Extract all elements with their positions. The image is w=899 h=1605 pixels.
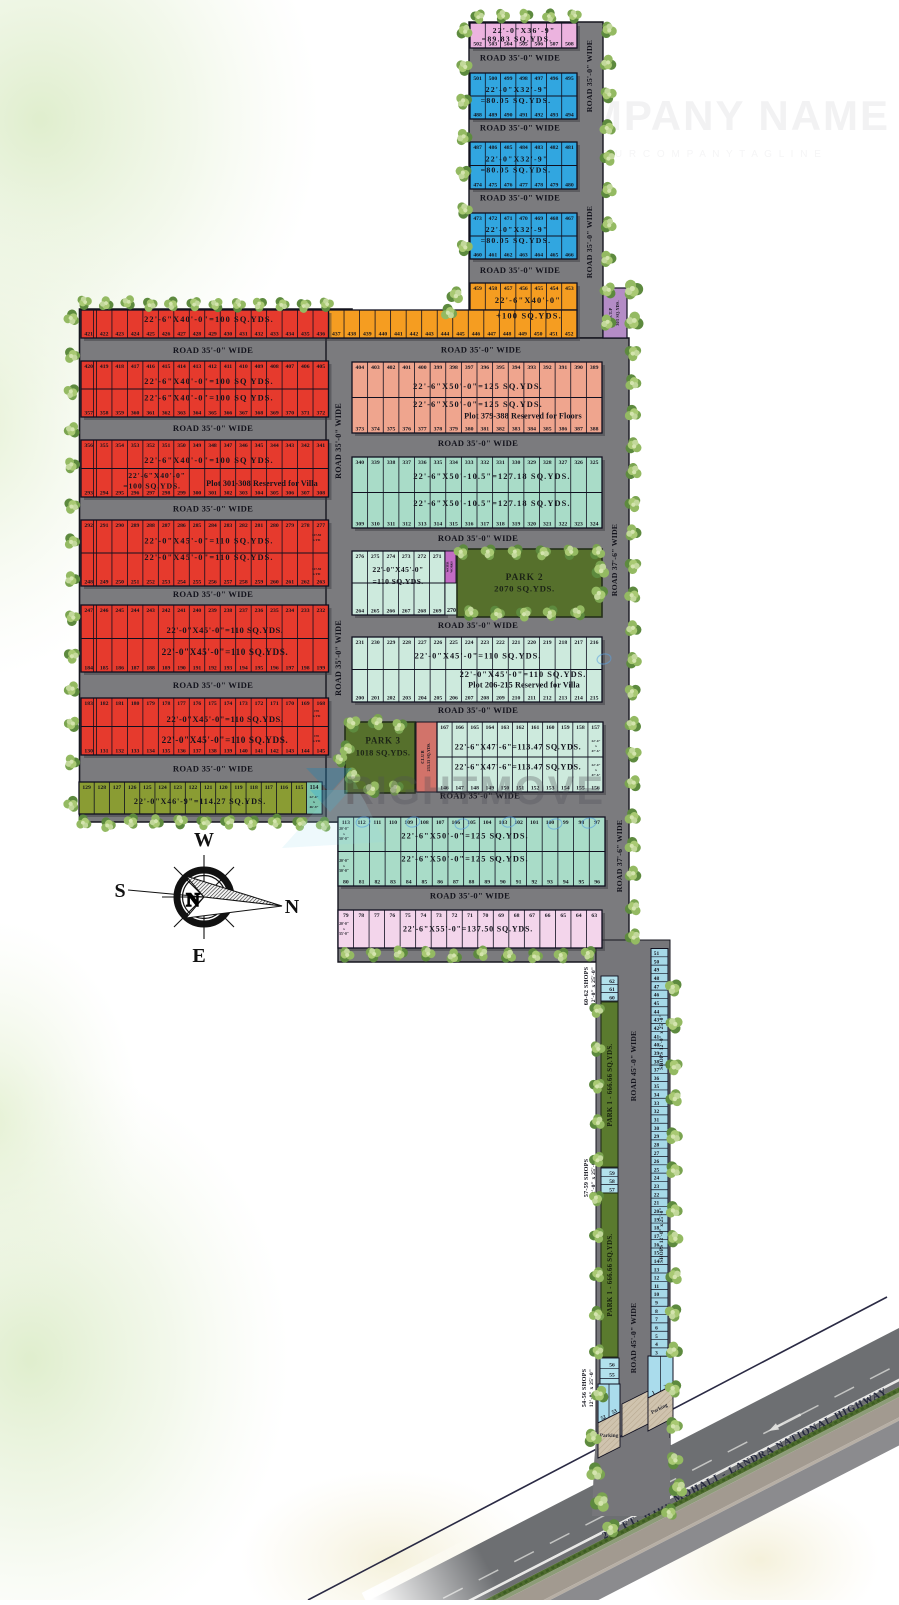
svg-text:241: 241 (177, 608, 186, 614)
svg-text:N: N (285, 896, 300, 918)
svg-text:ROAD 35'-0" WIDE: ROAD 35'-0" WIDE (438, 620, 518, 630)
svg-text:137: 137 (193, 749, 202, 755)
svg-text:129: 129 (82, 785, 91, 791)
svg-text:419: 419 (100, 364, 109, 370)
svg-text:417: 417 (131, 364, 140, 370)
svg-text:120: 120 (219, 785, 228, 791)
svg-text:367: 367 (239, 411, 248, 417)
svg-text:372: 372 (317, 411, 326, 417)
svg-text:273: 273 (402, 554, 411, 560)
svg-text:410: 410 (239, 364, 248, 370)
svg-text:WORKS: WORKS (450, 561, 454, 573)
svg-text:329: 329 (527, 460, 536, 466)
svg-text:268: 268 (418, 609, 427, 615)
svg-text:365: 365 (208, 411, 217, 417)
svg-text:405: 405 (317, 364, 326, 370)
svg-text:107: 107 (436, 820, 445, 826)
svg-text:341: 341 (317, 443, 326, 449)
svg-text:354: 354 (115, 443, 124, 449)
svg-text:238: 238 (224, 608, 233, 614)
svg-text:461: 461 (489, 253, 498, 259)
svg-text:12: 12 (654, 1276, 660, 1282)
svg-text:481: 481 (565, 145, 574, 151)
svg-text:409: 409 (255, 364, 264, 370)
svg-text:115: 115 (295, 785, 303, 791)
svg-text:S: S (114, 880, 125, 902)
svg-text:411: 411 (224, 364, 232, 370)
svg-text:67: 67 (529, 913, 535, 919)
svg-text:10: 10 (654, 1292, 660, 1298)
svg-text:492: 492 (535, 113, 544, 119)
svg-text:408: 408 (270, 364, 279, 370)
svg-text:145: 145 (317, 749, 326, 755)
svg-text:163: 163 (501, 725, 510, 731)
svg-text:x: x (595, 744, 597, 748)
svg-text:418: 418 (115, 364, 124, 370)
svg-text:219: 219 (543, 640, 552, 646)
svg-text:166: 166 (455, 725, 464, 731)
svg-text:415: 415 (162, 364, 171, 370)
svg-text:57-59 SHOPS: 57-59 SHOPS (583, 1158, 590, 1197)
svg-text:216: 216 (590, 640, 599, 646)
svg-text:2070 SQ.YDS.: 2070 SQ.YDS. (494, 584, 555, 594)
svg-text:368: 368 (255, 411, 264, 417)
svg-text:186: 186 (115, 666, 124, 672)
svg-text:22'-0"X46'-9"=114.27 SQ.YDS.: 22'-0"X46'-9"=114.27 SQ.YDS. (134, 797, 266, 806)
svg-text:7: 7 (655, 1317, 658, 1323)
svg-text:489: 489 (489, 113, 498, 119)
svg-text:458: 458 (489, 286, 498, 292)
svg-text:124: 124 (158, 785, 167, 791)
svg-text:404: 404 (356, 365, 365, 371)
svg-text:50: 50 (654, 959, 660, 965)
svg-text:159: 159 (561, 725, 570, 731)
svg-text:475: 475 (489, 183, 498, 189)
svg-text:244: 244 (131, 608, 140, 614)
svg-text:397: 397 (465, 365, 474, 371)
svg-text:400: 400 (418, 365, 427, 371)
svg-text:494: 494 (565, 113, 574, 119)
svg-text:Plot 301-308 Reserved for Vill: Plot 301-308 Reserved for Villa (206, 479, 318, 488)
svg-text:242: 242 (162, 608, 171, 614)
svg-text:142: 142 (270, 749, 279, 755)
svg-text:330: 330 (512, 460, 521, 466)
svg-text:22: 22 (654, 1192, 660, 1198)
svg-text:58: 58 (609, 1179, 615, 1185)
svg-text:254: 254 (177, 580, 186, 586)
svg-text:104: 104 (483, 820, 492, 826)
svg-text:35: 35 (654, 1084, 660, 1090)
svg-text:ROAD 35'-0" WIDE: ROAD 35'-0" WIDE (334, 620, 343, 696)
svg-text:125: 125 (143, 785, 152, 791)
svg-text:325: 325 (590, 460, 599, 466)
svg-text:E: E (192, 945, 205, 967)
svg-text:257: 257 (224, 580, 233, 586)
svg-text:255: 255 (193, 580, 202, 586)
svg-text:232: 232 (317, 608, 326, 614)
svg-text:229: 229 (387, 640, 396, 646)
svg-text:449: 449 (518, 332, 527, 338)
svg-text:83: 83 (390, 880, 396, 886)
svg-text:231: 231 (356, 640, 365, 646)
svg-text:278: 278 (301, 523, 310, 529)
svg-text:34: 34 (654, 1093, 660, 1099)
svg-text:451: 451 (549, 332, 558, 338)
svg-text:ROAD 35'-0" WIDE: ROAD 35'-0" WIDE (480, 53, 560, 63)
svg-text:222: 222 (496, 640, 505, 646)
svg-text:6: 6 (655, 1326, 658, 1332)
svg-text:326: 326 (574, 460, 583, 466)
svg-text:414: 414 (177, 364, 186, 370)
svg-text:439: 439 (363, 332, 372, 338)
svg-text:ROAD 37'-6" WIDE: ROAD 37'-6" WIDE (615, 820, 624, 892)
svg-text:373: 373 (356, 427, 365, 433)
svg-text:5: 5 (655, 1334, 658, 1340)
svg-text:243: 243 (146, 608, 155, 614)
svg-text:375: 375 (387, 427, 396, 433)
svg-text:299: 299 (177, 491, 186, 497)
svg-text:56: 56 (609, 1363, 615, 1369)
svg-text:290: 290 (115, 523, 124, 529)
svg-text:50'-0": 50'-0" (339, 869, 349, 873)
svg-text:191: 191 (193, 666, 202, 672)
svg-text:284: 284 (208, 523, 217, 529)
svg-text:383: 383 (512, 427, 521, 433)
svg-text:472: 472 (489, 216, 498, 222)
svg-text:1018 SQ.YDS.: 1018 SQ.YDS. (356, 749, 411, 758)
svg-text:210: 210 (512, 696, 521, 702)
svg-text:300: 300 (193, 491, 202, 497)
svg-text:22'-0"X45'-0"=110 SQ.YDS.: 22'-0"X45'-0"=110 SQ.YDS. (167, 625, 284, 635)
svg-text:178: 178 (162, 701, 171, 707)
svg-text:214: 214 (574, 696, 583, 702)
svg-text:122: 122 (189, 785, 198, 791)
svg-text:162: 162 (516, 725, 525, 731)
svg-text:237: 237 (239, 608, 248, 614)
svg-text:ROAD 35'-0" WIDE: ROAD 35'-0" WIDE (334, 403, 343, 479)
svg-text:264: 264 (356, 609, 365, 615)
svg-text:51: 51 (654, 951, 660, 957)
svg-text:379: 379 (449, 427, 458, 433)
svg-text:490: 490 (504, 113, 513, 119)
svg-text:463: 463 (519, 253, 528, 259)
svg-text:177: 177 (177, 701, 186, 707)
svg-text:23: 23 (654, 1184, 660, 1190)
svg-text:350: 350 (177, 443, 186, 449)
svg-text:S.YD: S.YD (313, 572, 321, 576)
svg-text:80: 80 (343, 880, 349, 886)
svg-text:499: 499 (504, 76, 513, 82)
svg-text:=80.05 SQ.YDS.: =80.05 SQ.YDS. (481, 236, 552, 245)
svg-text:487: 487 (473, 145, 482, 151)
svg-text:196: 196 (270, 666, 279, 672)
svg-text:24: 24 (654, 1176, 660, 1182)
svg-text:172: 172 (255, 701, 264, 707)
svg-text:ROAD 35'-0" WIDE: ROAD 35'-0" WIDE (173, 504, 253, 514)
svg-text:91: 91 (516, 880, 522, 886)
svg-text:307: 307 (301, 491, 310, 497)
svg-text:352: 352 (146, 443, 155, 449)
svg-text:446: 446 (472, 332, 481, 338)
svg-text:94: 94 (563, 880, 569, 886)
svg-text:12'-0" x 25'-0": 12'-0" x 25'-0" (589, 1369, 595, 1407)
svg-text:20'-0": 20'-0" (339, 859, 349, 863)
svg-text:448: 448 (503, 332, 512, 338)
svg-text:86: 86 (437, 880, 443, 886)
svg-text:385: 385 (543, 427, 552, 433)
svg-text:27: 27 (654, 1151, 660, 1157)
svg-text:139: 139 (224, 749, 233, 755)
svg-text:66: 66 (545, 913, 551, 919)
svg-text:460: 460 (473, 253, 482, 259)
svg-text:387: 387 (574, 427, 583, 433)
svg-text:251: 251 (131, 580, 140, 586)
svg-text:ROAD 35'-0" WIDE: ROAD 35'-0" WIDE (438, 533, 518, 543)
svg-text:319: 319 (512, 522, 521, 528)
svg-text:429: 429 (208, 332, 217, 338)
svg-text:334: 334 (449, 460, 458, 466)
svg-text:11: 11 (654, 1284, 659, 1290)
svg-text:213: 213 (559, 696, 568, 702)
svg-text:323: 323 (574, 522, 583, 528)
svg-text:421: 421 (84, 332, 93, 338)
svg-text:170: 170 (286, 701, 295, 707)
svg-text:447: 447 (487, 332, 496, 338)
svg-text:353: 353 (131, 443, 140, 449)
svg-text:128: 128 (98, 785, 107, 791)
svg-text:413: 413 (193, 364, 202, 370)
svg-text:ROAD 45'-0" WIDE: ROAD 45'-0" WIDE (629, 1303, 638, 1374)
svg-text:22'-6"X40'-0": 22'-6"X40'-0" (495, 296, 561, 305)
svg-text:ROAD 35'-0" WIDE: ROAD 35'-0" WIDE (173, 589, 253, 599)
svg-text:442: 442 (410, 332, 419, 338)
svg-text:227: 227 (418, 640, 427, 646)
svg-text:170: 170 (314, 734, 319, 738)
svg-text:480: 480 (565, 183, 574, 189)
svg-text:401: 401 (402, 365, 411, 371)
svg-text:74: 74 (421, 913, 427, 919)
svg-text:85: 85 (422, 880, 428, 886)
svg-text:3: 3 (655, 1351, 658, 1357)
svg-text:170: 170 (314, 709, 319, 713)
svg-text:256: 256 (208, 580, 217, 586)
svg-text:291: 291 (100, 523, 109, 529)
svg-text:RIGHTMOVE: RIGHTMOVE (345, 769, 605, 813)
svg-text:46: 46 (654, 993, 660, 999)
svg-text:132: 132 (115, 749, 124, 755)
svg-text:440: 440 (379, 332, 388, 338)
svg-text:470: 470 (519, 216, 528, 222)
svg-text:250: 250 (115, 580, 124, 586)
svg-text:PARK 2: PARK 2 (506, 573, 544, 583)
svg-text:22'-0"X45'-0"=110 SQ.YDS.: 22'-0"X45'-0"=110 SQ.YDS. (460, 670, 587, 679)
svg-text:22'-6"X47'-6"=113.47 SQ.YDS.: 22'-6"X47'-6"=113.47 SQ.YDS. (455, 743, 582, 752)
svg-text:356: 356 (84, 443, 93, 449)
svg-text:327: 327 (559, 460, 568, 466)
svg-text:289: 289 (131, 523, 140, 529)
svg-text:266: 266 (387, 609, 396, 615)
svg-text:217: 217 (574, 640, 583, 646)
svg-text:252: 252 (146, 580, 155, 586)
svg-text:73: 73 (436, 913, 442, 919)
svg-text:434: 434 (286, 332, 295, 338)
svg-text:62: 62 (609, 979, 615, 985)
svg-text:22'-6"X40'-0"=100 SQ YDS.: 22'-6"X40'-0"=100 SQ YDS. (144, 394, 273, 403)
svg-text:280: 280 (270, 523, 279, 529)
svg-text:355: 355 (100, 443, 109, 449)
svg-text:22'-0"X45'-0"=110 SQ.YDS.: 22'-0"X45'-0"=110 SQ.YDS. (162, 647, 289, 657)
svg-text:169: 169 (301, 701, 310, 707)
svg-text:296: 296 (131, 491, 140, 497)
svg-text:22'-0"X45'-0"=110 SQ.YDS.: 22'-0"X45'-0"=110 SQ.YDS. (144, 553, 273, 562)
svg-text:78: 78 (358, 913, 364, 919)
svg-text:60: 60 (609, 996, 615, 1002)
svg-text:22'-6"X50'-0"=125 SQ.YDS.: 22'-6"X50'-0"=125 SQ.YDS. (413, 382, 543, 391)
svg-text:279: 279 (286, 523, 295, 529)
svg-text:398: 398 (449, 365, 458, 371)
svg-text:224: 224 (465, 640, 474, 646)
svg-text:293: 293 (84, 491, 93, 497)
svg-text:22'-0"X45'-0"=110 SQ.YDS.: 22'-0"X45'-0"=110 SQ.YDS. (144, 537, 273, 546)
svg-text:133: 133 (131, 749, 140, 755)
svg-text:443: 443 (425, 332, 434, 338)
svg-text:65: 65 (560, 913, 566, 919)
svg-text:469: 469 (535, 216, 544, 222)
svg-text:482: 482 (550, 145, 559, 151)
svg-text:PARK 1 - 666.66 SQ.YDS.: PARK 1 - 666.66 SQ.YDS. (607, 1044, 614, 1127)
svg-text:220: 220 (527, 640, 536, 646)
svg-text:185: 185 (100, 666, 109, 672)
svg-text:508: 508 (565, 42, 574, 48)
svg-text:286: 286 (177, 523, 186, 529)
svg-text:22'-6"X50'-0"=125 SQ.YDS.: 22'-6"X50'-0"=125 SQ.YDS. (413, 400, 543, 409)
svg-text:157: 157 (591, 725, 600, 731)
svg-text:467: 467 (565, 216, 574, 222)
svg-text:493: 493 (550, 113, 559, 119)
svg-text:=80.05 SQ.YDS.: =80.05 SQ.YDS. (481, 166, 552, 175)
svg-text:234: 234 (286, 608, 295, 614)
svg-text:396: 396 (481, 365, 490, 371)
svg-text:309: 309 (356, 522, 365, 528)
svg-text:501: 501 (473, 76, 482, 82)
svg-text:9: 9 (655, 1301, 658, 1307)
svg-text:479: 479 (550, 183, 559, 189)
svg-text:ROAD 35'-0" WIDE: ROAD 35'-0" WIDE (585, 40, 594, 112)
svg-text:245: 245 (115, 608, 124, 614)
svg-text:302: 302 (224, 491, 233, 497)
svg-text:S.YD: S.YD (313, 538, 321, 542)
svg-text:ROAD 35'-0" WIDE: ROAD 35'-0" WIDE (438, 705, 518, 715)
svg-text:332: 332 (481, 460, 490, 466)
svg-text:108: 108 (420, 820, 429, 826)
svg-text:198: 198 (301, 666, 310, 672)
svg-text:346: 346 (239, 443, 248, 449)
svg-text:W: W (194, 829, 214, 851)
svg-text:391: 391 (559, 365, 568, 371)
svg-text:126: 126 (128, 785, 137, 791)
svg-text:96: 96 (594, 880, 600, 886)
svg-text:407: 407 (286, 364, 295, 370)
svg-text:134: 134 (146, 749, 155, 755)
svg-text:164: 164 (486, 725, 495, 731)
svg-text:200: 200 (356, 696, 365, 702)
svg-text:S.YD: S.YD (313, 714, 321, 718)
svg-text:x: x (343, 864, 345, 868)
svg-text:92: 92 (531, 880, 537, 886)
svg-text:54-56 SHOPS: 54-56 SHOPS (581, 1368, 588, 1407)
svg-text:267: 267 (402, 609, 411, 615)
svg-text:382: 382 (496, 427, 505, 433)
svg-text:283: 283 (224, 523, 233, 529)
svg-text:45: 45 (654, 1001, 660, 1007)
svg-text:474: 474 (473, 183, 482, 189)
svg-text:349: 349 (193, 443, 202, 449)
svg-text:118: 118 (250, 785, 258, 791)
svg-text:457: 457 (504, 286, 513, 292)
svg-text:22'-6"X40'-0"=100 SQ YDS.: 22'-6"X40'-0"=100 SQ YDS. (144, 456, 273, 465)
svg-text:184: 184 (84, 666, 93, 672)
svg-text:370: 370 (286, 411, 295, 417)
svg-text:321: 321 (543, 522, 552, 528)
svg-text:195: 195 (255, 666, 264, 672)
svg-text:456: 456 (519, 286, 528, 292)
svg-text:192: 192 (208, 666, 217, 672)
svg-text:165: 165 (470, 725, 479, 731)
svg-text:236: 236 (255, 608, 264, 614)
svg-text:471: 471 (504, 216, 513, 222)
svg-text:188: 188 (146, 666, 155, 672)
svg-text:Plot 206-215 Reserved for Vill: Plot 206-215 Reserved for Villa (468, 681, 580, 690)
svg-text:377: 377 (418, 427, 427, 433)
svg-text:194: 194 (239, 666, 248, 672)
svg-text:68: 68 (514, 913, 520, 919)
svg-text:158: 158 (576, 725, 585, 731)
svg-text:269: 269 (433, 609, 442, 615)
svg-text:127.50: 127.50 (312, 567, 322, 571)
svg-text:70: 70 (483, 913, 489, 919)
svg-text:63: 63 (591, 913, 597, 919)
svg-text:468: 468 (550, 216, 559, 222)
svg-text:388: 388 (590, 427, 599, 433)
svg-text:308: 308 (317, 491, 326, 497)
svg-text:201: 201 (371, 696, 380, 702)
svg-text:ROAD 35'-0" WIDE: ROAD 35'-0" WIDE (173, 764, 253, 774)
svg-text:87: 87 (453, 880, 459, 886)
svg-text:180: 180 (131, 701, 140, 707)
svg-text:93: 93 (547, 880, 553, 886)
svg-text:294: 294 (100, 491, 109, 497)
svg-text:48: 48 (654, 976, 660, 982)
svg-text:171: 171 (270, 701, 279, 707)
svg-text:392: 392 (543, 365, 552, 371)
svg-text:403: 403 (371, 365, 380, 371)
svg-text:331: 331 (496, 460, 505, 466)
svg-text:187: 187 (131, 666, 140, 672)
svg-text:394: 394 (512, 365, 521, 371)
svg-text:486: 486 (489, 145, 498, 151)
svg-text:337: 337 (402, 460, 411, 466)
svg-text:277: 277 (317, 523, 326, 529)
svg-text:223: 223 (481, 640, 490, 646)
svg-text:306: 306 (286, 491, 295, 497)
svg-text:22'-6"X50'-0"=125 SQ.YDS.: 22'-6"X50'-0"=125 SQ.YDS. (401, 832, 528, 841)
svg-text:459: 459 (473, 286, 482, 292)
svg-text:425: 425 (146, 332, 155, 338)
svg-text:345: 345 (255, 443, 264, 449)
svg-text:197: 197 (286, 666, 295, 672)
svg-text:84: 84 (406, 880, 412, 886)
svg-text:36: 36 (654, 1076, 660, 1082)
